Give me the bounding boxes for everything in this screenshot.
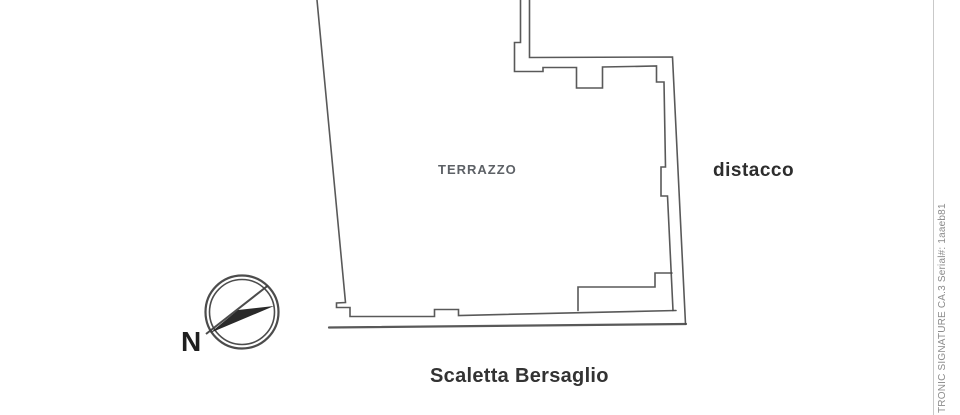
terrazzo-area-label: TERRAZZO [438, 162, 517, 177]
north-arrow-icon [210, 306, 274, 333]
compass-north-label: N [181, 326, 201, 358]
plan-inner-wall [515, 0, 674, 311]
signature-strip-divider [933, 0, 934, 415]
floor-plan-drawing [0, 0, 960, 415]
distacco-label: distacco [713, 160, 794, 182]
plan-outer-wall [530, 0, 686, 324]
plan-left-and-bottom-boundary [317, 0, 676, 317]
scanned-floor-plan-page: TERRAZZO distacco Scaletta Bersaglio N T… [0, 0, 960, 415]
scaletta-bersaglio-label: Scaletta Bersaglio [430, 365, 609, 388]
lower-boundary-line [329, 324, 686, 328]
signature-strip-text: TRONIC SIGNATURE CA.3 Serial#: 1aaeb81 [937, 181, 948, 413]
compass-icon [206, 276, 279, 349]
plan-corner-step [578, 273, 672, 311]
